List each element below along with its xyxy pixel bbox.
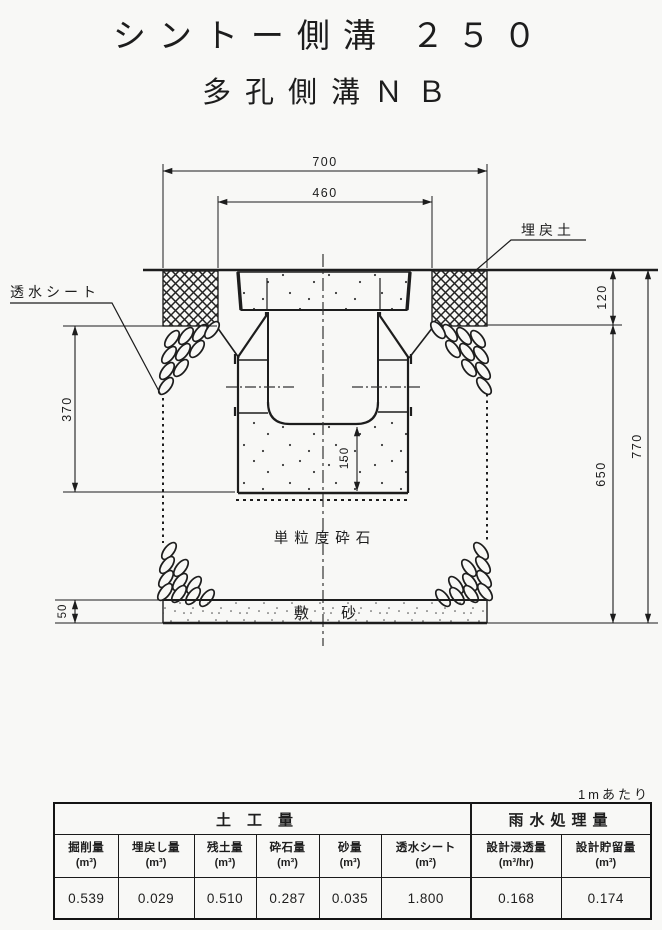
per-meter-note: 1mあたり	[578, 784, 650, 803]
dim-370-text: 370	[60, 396, 74, 421]
dim-770-text: 770	[630, 433, 644, 458]
col-header-backfill: 埋戻し量 (m³)	[118, 835, 194, 878]
dimension-370: 370	[60, 326, 235, 492]
dim-460-text: 460	[312, 186, 337, 200]
quantity-table: 土工量 雨水処理量 掘削量 (m³) 埋戻し量 (m³) 残土量 (m³) 砕石…	[53, 802, 652, 920]
svg-text:透水シート: 透水シート	[10, 284, 100, 300]
label-backfill-soil: 埋戻土	[475, 222, 586, 271]
group-header-rainwater: 雨水処理量	[471, 803, 651, 835]
stones-lower-right	[433, 540, 495, 609]
stones-lower-left	[155, 540, 217, 609]
label-bedding-sand: 敷 砂	[294, 604, 370, 622]
value-backfill: 0.029	[118, 878, 194, 920]
label-crushed-stone: 単粒度砕石	[274, 530, 377, 547]
group-header-earthwork: 土工量	[54, 803, 471, 835]
page-subtitle: 多孔側溝ＮＢ	[0, 69, 662, 111]
dimension-460: 460	[218, 186, 432, 268]
channel-lid	[238, 272, 410, 310]
value-design-infiltration: 0.168	[471, 878, 561, 920]
dim-650-text: 650	[594, 461, 608, 486]
dim-50-text: 50	[57, 604, 69, 619]
col-header-residual-soil: 残土量 (m³)	[194, 835, 256, 878]
stones-upper-right	[428, 319, 494, 397]
cross-section-drawing: 700 460 370 150 120 650 770	[0, 140, 662, 660]
col-header-design-infiltration: 設計浸透量 (m³/hr)	[471, 835, 561, 878]
value-sand: 0.035	[319, 878, 381, 920]
col-header-design-storage: 設計貯留量 (m³)	[561, 835, 651, 878]
drawing-sheet: シントー側溝 ２５０ 多孔側溝ＮＢ	[0, 0, 662, 930]
dim-150-text: 150	[339, 447, 351, 469]
value-residual-soil: 0.510	[194, 878, 256, 920]
col-header-excavation: 掘削量 (m³)	[54, 835, 118, 878]
channel-body	[226, 312, 423, 493]
stones-upper-left	[156, 319, 222, 397]
col-header-crushed-stone: 砕石量 (m³)	[256, 835, 319, 878]
page-title: シントー側溝 ２５０	[0, 9, 662, 57]
dimension-120-650-770: 120 650 770	[487, 270, 648, 623]
dimension-700: 700	[163, 155, 487, 268]
group-header-row: 土工量 雨水処理量	[54, 803, 651, 835]
value-crushed-stone: 0.287	[256, 878, 319, 920]
dim-120-text: 120	[595, 284, 609, 309]
value-row: 0.539 0.029 0.510 0.287 0.035 1.800 0.16…	[54, 878, 651, 920]
value-design-storage: 0.174	[561, 878, 651, 920]
value-permeable-sheet: 1.800	[381, 878, 471, 920]
col-header-permeable-sheet: 透水シート (m²)	[381, 835, 471, 878]
value-excavation: 0.539	[54, 878, 118, 920]
svg-text:埋戻土: 埋戻土	[521, 222, 575, 238]
dim-700-text: 700	[312, 155, 337, 169]
column-header-row: 掘削量 (m³) 埋戻し量 (m³) 残土量 (m³) 砕石量 (m³) 砂量	[54, 835, 651, 878]
label-permeable-sheet: 透水シート	[10, 284, 161, 395]
col-header-sand: 砂量 (m³)	[319, 835, 381, 878]
